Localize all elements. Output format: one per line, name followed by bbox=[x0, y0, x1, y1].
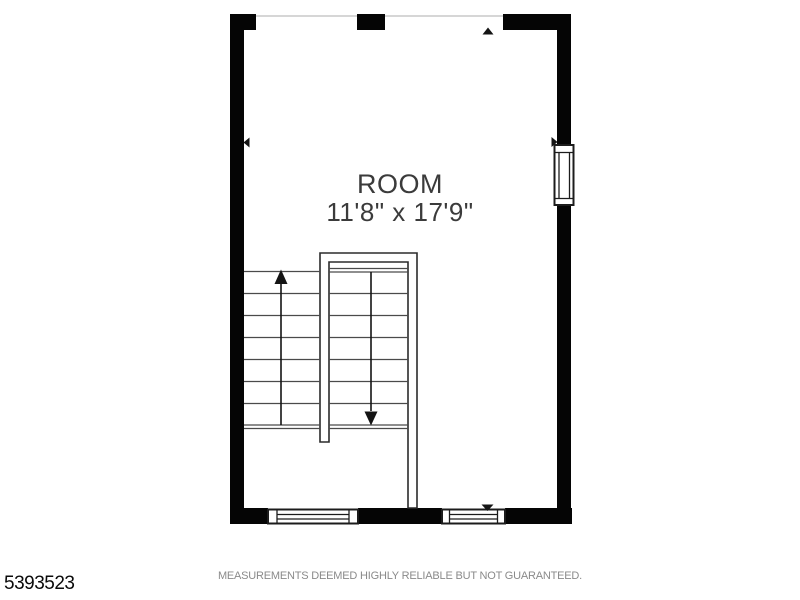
stairwell-wall bbox=[320, 253, 417, 508]
listing-number: 5393523 bbox=[4, 573, 74, 595]
bottom-left-wall-block bbox=[230, 508, 268, 524]
arrow-down-icon bbox=[365, 412, 378, 426]
stairs-down-flight bbox=[329, 269, 408, 429]
stairs-up-arrow-icon bbox=[275, 270, 288, 426]
right-wall-upper bbox=[557, 14, 571, 145]
marker-left-icon bbox=[244, 138, 250, 148]
left-wall bbox=[230, 14, 244, 524]
right-wall-lower bbox=[557, 205, 571, 524]
bottom-left-window bbox=[268, 510, 358, 524]
stairs-down-arrow-icon bbox=[365, 272, 378, 426]
top-wall-pier bbox=[357, 14, 385, 30]
floor-plan: ROOM 11'8" x 17'9" bbox=[0, 0, 800, 600]
stairs-up-flight bbox=[244, 272, 320, 429]
bottom-wall-pier bbox=[358, 508, 442, 524]
room-dimensions-label: 11'8" x 17'9" bbox=[326, 197, 473, 227]
bottom-right-wall-block bbox=[505, 508, 572, 524]
right-wall-window bbox=[555, 145, 574, 205]
marker-top-icon bbox=[483, 28, 494, 35]
bottom-right-window bbox=[442, 510, 505, 524]
floor-plan-page: { "floor_plan": { "room": { "label": "RO… bbox=[0, 0, 800, 600]
top-left-wall-block bbox=[230, 14, 256, 30]
room-name-label: ROOM bbox=[357, 169, 443, 199]
disclaimer-text: MEASUREMENTS DEEMED HIGHLY RELIABLE BUT … bbox=[0, 570, 800, 582]
wall-opening-markers bbox=[244, 28, 558, 512]
